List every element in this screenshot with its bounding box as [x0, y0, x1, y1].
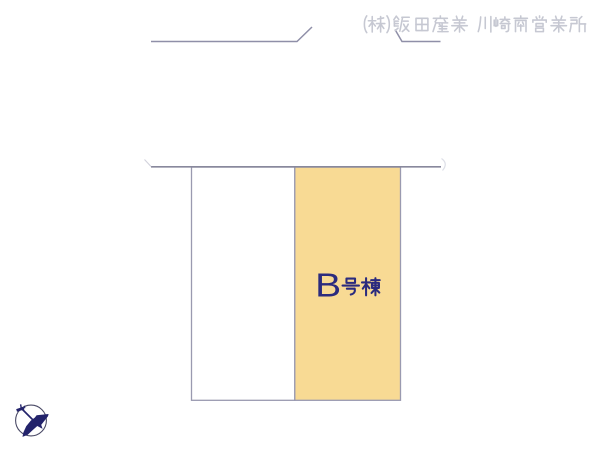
svg-text:B: B [315, 267, 341, 304]
